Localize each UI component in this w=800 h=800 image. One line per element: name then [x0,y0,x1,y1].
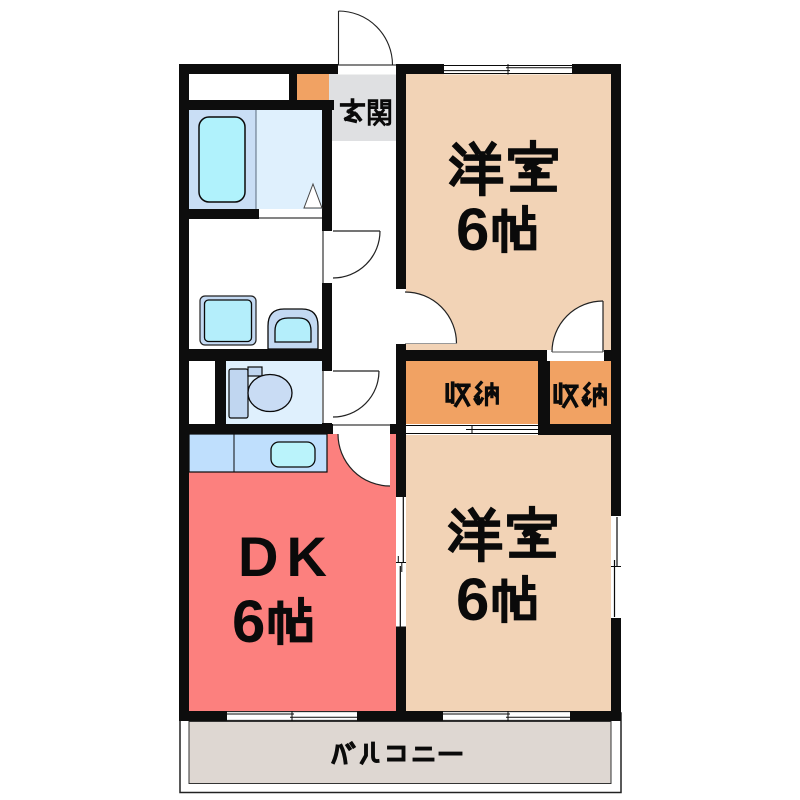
svg-text:DK: DK [238,525,335,588]
svg-text:6: 6 [456,566,489,633]
svg-text:6: 6 [456,196,489,263]
svg-text:6: 6 [232,588,265,655]
